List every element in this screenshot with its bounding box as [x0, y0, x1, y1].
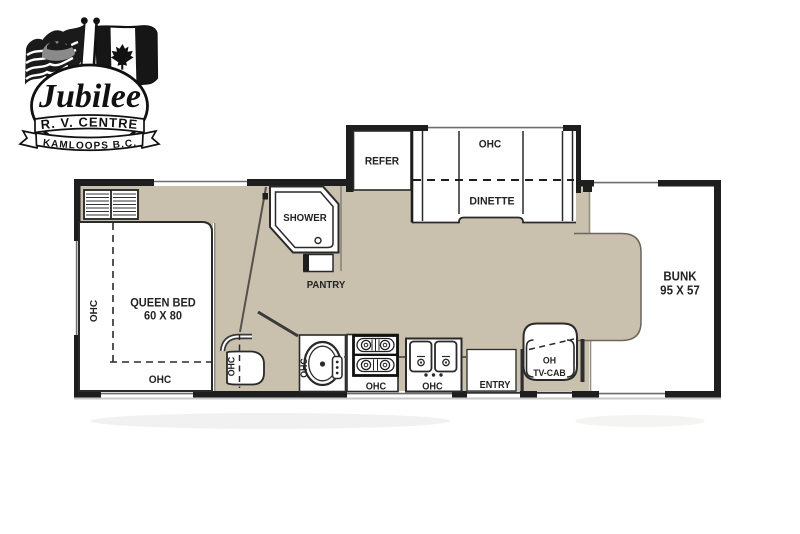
- svg-text:OHC: OHC: [479, 138, 502, 150]
- svg-text:TV-CAB: TV-CAB: [533, 368, 566, 378]
- svg-text:95 X 57: 95 X 57: [660, 283, 700, 298]
- svg-text:OHC: OHC: [366, 381, 386, 392]
- svg-text:SHOWER: SHOWER: [283, 213, 327, 224]
- svg-text:OHC: OHC: [89, 300, 100, 322]
- svg-text:QUEEN BED: QUEEN BED: [130, 297, 196, 309]
- svg-text:ENTRY: ENTRY: [480, 380, 511, 391]
- svg-text:BUNK: BUNK: [663, 269, 697, 284]
- svg-text:OHC: OHC: [422, 381, 442, 392]
- svg-text:60 X 80: 60 X 80: [144, 310, 182, 322]
- svg-text:R. V. CENTRE: R. V. CENTRE: [40, 114, 139, 132]
- svg-text:OH: OH: [543, 355, 556, 365]
- svg-text:DINETTE: DINETTE: [469, 195, 514, 207]
- svg-text:OHC: OHC: [227, 356, 237, 376]
- svg-text:OHC: OHC: [149, 374, 172, 386]
- svg-text:PANTRY: PANTRY: [307, 280, 346, 291]
- svg-text:REFER: REFER: [365, 155, 400, 167]
- svg-text:OHC: OHC: [299, 358, 309, 378]
- svg-text:Jubilee: Jubilee: [38, 78, 141, 115]
